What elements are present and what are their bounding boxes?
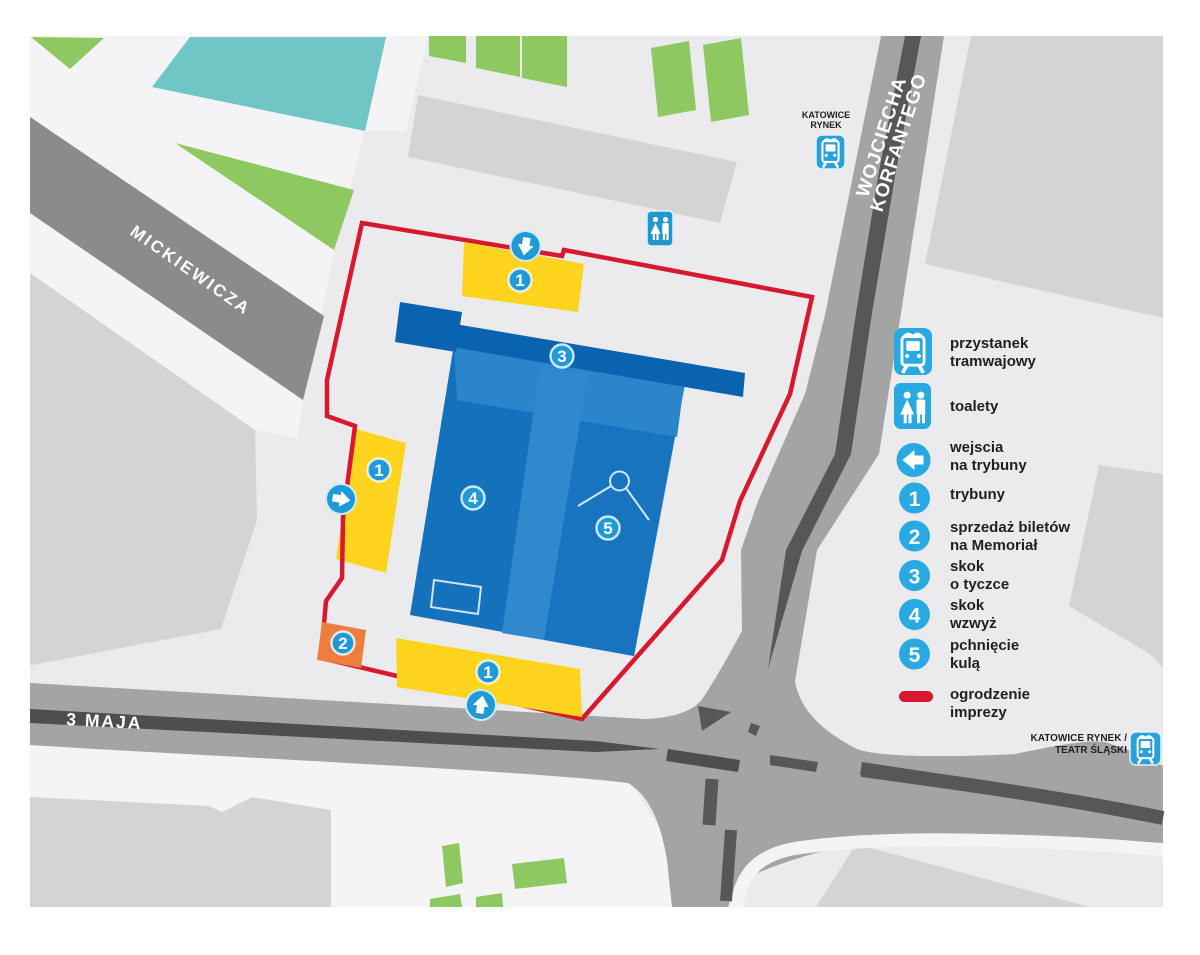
- svg-text:1: 1: [483, 663, 492, 682]
- svg-text:imprezy: imprezy: [950, 704, 1007, 721]
- svg-text:wejscia: wejscia: [949, 439, 1004, 456]
- svg-text:3: 3: [557, 347, 566, 366]
- svg-text:kulą: kulą: [950, 655, 981, 672]
- svg-text:TEATR ŚLĄSKI: TEATR ŚLĄSKI: [1055, 743, 1127, 756]
- svg-text:tramwajowy: tramwajowy: [950, 353, 1037, 370]
- svg-text:o tyczce: o tyczce: [950, 576, 1009, 593]
- svg-text:KATOWICE RYNEK /: KATOWICE RYNEK /: [1031, 733, 1128, 744]
- svg-text:wzwyż: wzwyż: [949, 615, 997, 632]
- svg-text:KATOWICE: KATOWICE: [802, 110, 850, 120]
- svg-text:sprzedaż biletów: sprzedaż biletów: [950, 519, 1070, 536]
- svg-text:pchnięcie: pchnięcie: [950, 637, 1019, 654]
- svg-text:3: 3: [909, 566, 921, 589]
- svg-text:na Memoriał: na Memoriał: [950, 537, 1038, 554]
- svg-text:przystanek: przystanek: [950, 335, 1029, 352]
- svg-text:5: 5: [909, 644, 921, 667]
- svg-text:4: 4: [468, 489, 478, 508]
- svg-text:toalety: toalety: [950, 398, 999, 415]
- svg-text:trybuny: trybuny: [950, 486, 1006, 503]
- svg-text:1: 1: [374, 461, 383, 480]
- svg-text:skok: skok: [950, 597, 985, 614]
- svg-text:5: 5: [603, 519, 612, 538]
- svg-text:ogrodzenie: ogrodzenie: [950, 686, 1030, 703]
- svg-text:3 MAJA: 3 MAJA: [66, 709, 143, 733]
- svg-text:2: 2: [909, 526, 921, 549]
- svg-text:1: 1: [909, 488, 921, 511]
- svg-text:2: 2: [338, 634, 347, 653]
- svg-text:4: 4: [909, 605, 921, 628]
- svg-text:RYNEK: RYNEK: [810, 120, 842, 130]
- svg-text:na trybuny: na trybuny: [950, 457, 1027, 474]
- svg-text:1: 1: [515, 271, 524, 290]
- svg-text:skok: skok: [950, 558, 985, 575]
